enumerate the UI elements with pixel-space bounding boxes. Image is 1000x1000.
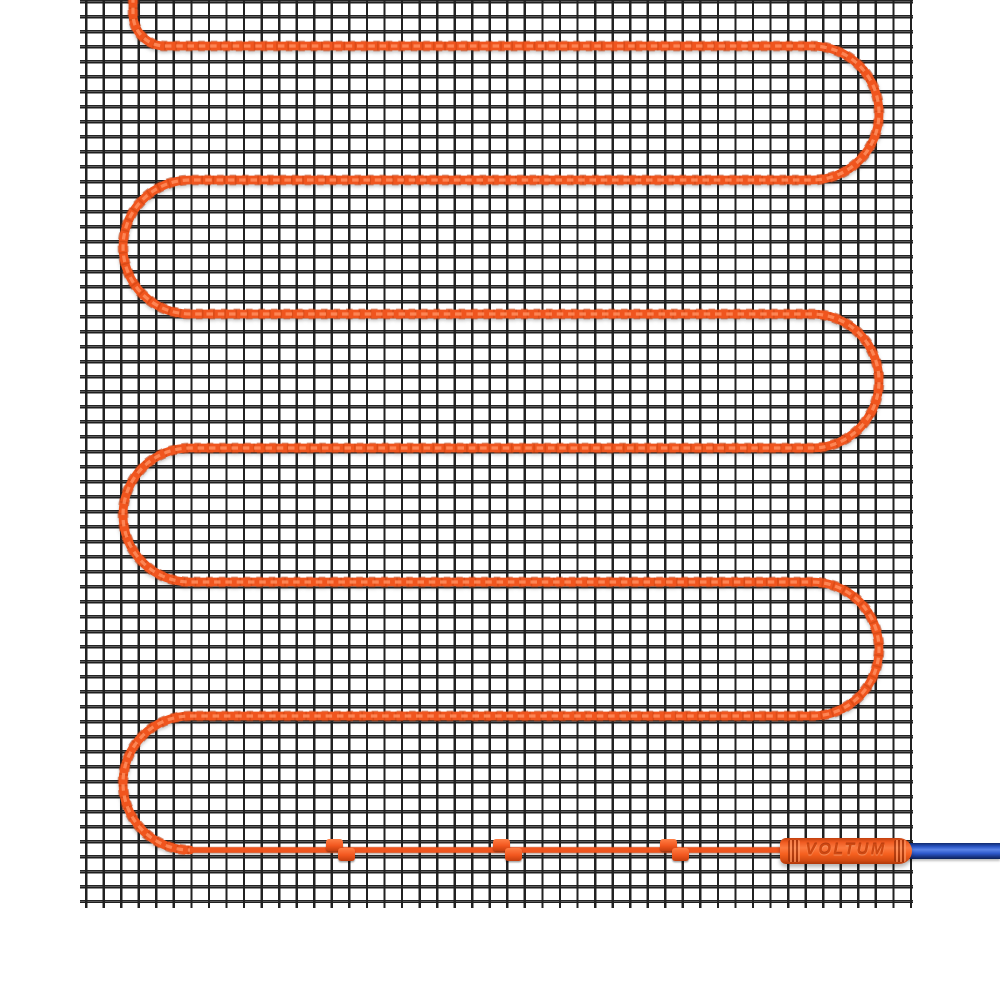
heating-cable-twist-marks xyxy=(123,0,879,850)
cable-clip xyxy=(326,839,356,861)
cold-lead-cable xyxy=(905,843,1000,859)
cable-clip-lower-block xyxy=(505,848,522,861)
heating-cable-gloss xyxy=(123,0,879,850)
connector: VOLTUM xyxy=(780,838,912,864)
brand-label: VOLTUM xyxy=(780,841,912,859)
cable-clip-lower-block xyxy=(338,848,355,861)
cable-clip-lower-block xyxy=(672,848,689,861)
heating-cable-twist-texture xyxy=(123,0,879,850)
heating-cable-path xyxy=(123,0,879,850)
cable-clip xyxy=(660,839,690,861)
cable-clip xyxy=(493,839,523,861)
heating-mat-scene: VOLTUM xyxy=(0,0,1000,1000)
